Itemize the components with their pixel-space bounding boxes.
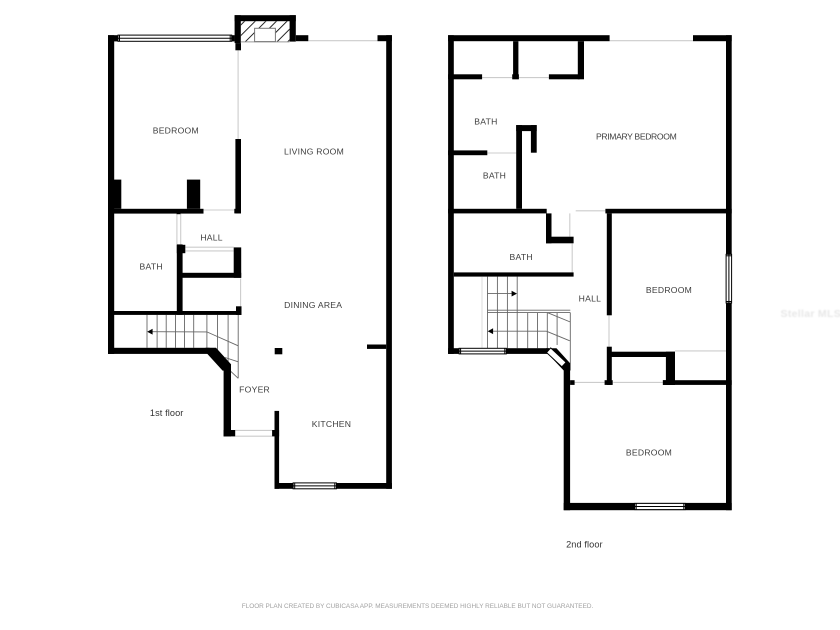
- svg-text:Stellar MLS: Stellar MLS: [781, 308, 840, 320]
- svg-text:BATH: BATH: [510, 252, 533, 262]
- svg-text:BEDROOM: BEDROOM: [153, 126, 199, 136]
- svg-text:HALL: HALL: [579, 293, 602, 303]
- svg-text:BEDROOM: BEDROOM: [646, 285, 692, 295]
- svg-text:BATH: BATH: [474, 116, 497, 126]
- svg-text:PRIMARY BEDROOM: PRIMARY BEDROOM: [596, 131, 677, 141]
- svg-text:DINING AREA: DINING AREA: [284, 300, 342, 310]
- svg-text:1st floor: 1st floor: [150, 408, 184, 418]
- svg-text:BATH: BATH: [140, 262, 163, 272]
- svg-text:2nd floor: 2nd floor: [566, 540, 603, 550]
- svg-text:BEDROOM: BEDROOM: [626, 447, 672, 457]
- svg-text:KITCHEN: KITCHEN: [312, 419, 351, 429]
- svg-text:HALL: HALL: [200, 233, 223, 243]
- svg-text:LIVING ROOM: LIVING ROOM: [284, 146, 344, 156]
- svg-text:BATH: BATH: [483, 171, 506, 181]
- svg-text:FLOOR PLAN CREATED BY CUBICASA: FLOOR PLAN CREATED BY CUBICASA APP. MEAS…: [242, 603, 594, 610]
- svg-text:FOYER: FOYER: [239, 385, 270, 395]
